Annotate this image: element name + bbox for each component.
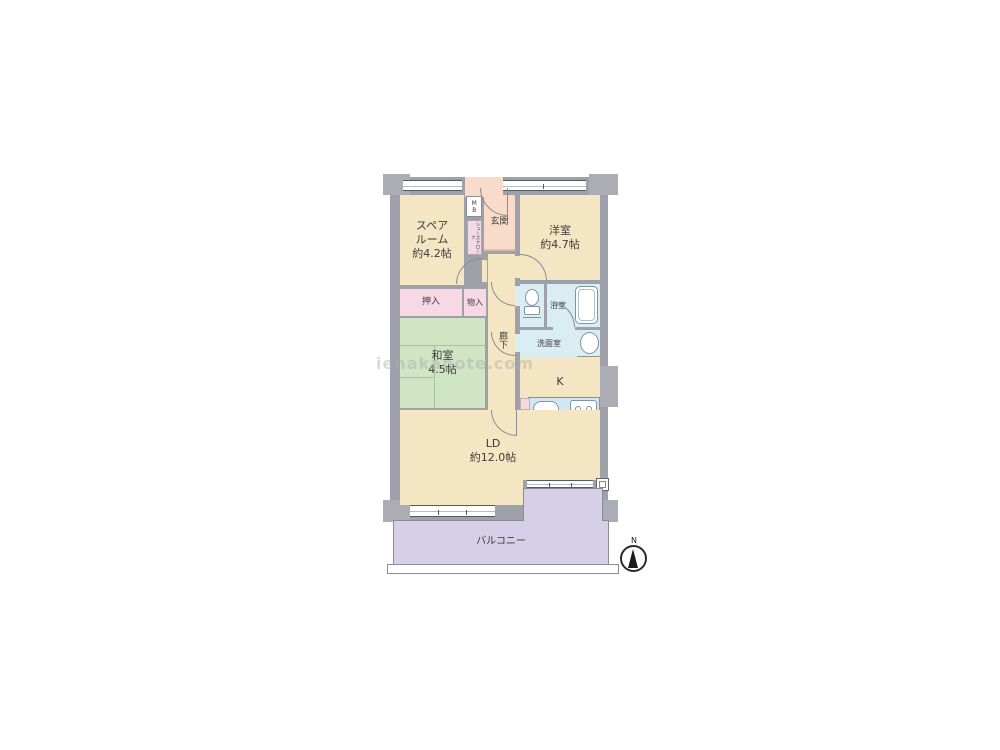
compass-north-label: N [631, 536, 637, 545]
bathtub-icon [575, 286, 598, 324]
opening-spare [482, 260, 487, 282]
room-entrance-label: 玄関 [490, 217, 508, 228]
ld-door-leaf [516, 410, 517, 436]
meter-box-label: MB [470, 200, 478, 214]
room-washroom-label: 洗面室 [537, 339, 561, 349]
opening-toilet [515, 286, 520, 306]
toilet-icon [523, 289, 541, 323]
room-toilet [520, 284, 544, 327]
entrance-step-line [484, 249, 515, 251]
window-ld-balcony-right [527, 480, 593, 488]
compass-needle [628, 549, 638, 568]
closet-monoire: 物入 [464, 289, 486, 316]
shoe-closet-label: シューズクローク [470, 221, 479, 254]
pillar-top-right [589, 174, 618, 195]
room-balcony-label: バルコニー [476, 536, 526, 549]
meter-box: MB [466, 196, 482, 217]
room-western-label: 洋室 約4.7帖 [540, 224, 580, 252]
room-ld-label: LD 約12.0帖 [470, 437, 517, 465]
room-kitchen-label: K [556, 375, 563, 389]
room-ld-label-box: LD 約12.0帖 [443, 434, 543, 468]
window-ld-balcony [410, 505, 495, 517]
floor-plan: スペア ルーム 約4.2帖 MB シューズクローク 玄関 廊下 洋室 約4.7帖 [383, 170, 635, 582]
compass-icon: N [617, 536, 651, 574]
watermark: ienakanote.com [376, 354, 716, 373]
balcony-extension [523, 488, 603, 521]
balcony-seam-patch [524, 519, 602, 522]
room-spare-label: スペア ルーム 約4.2帖 [412, 219, 452, 260]
closet-oshiire: 押入 [400, 289, 462, 316]
closet-oshiire-label: 押入 [422, 297, 440, 308]
opening-bath [553, 327, 575, 330]
floorplan-canvas: ienakanote.com スペア ルーム 約4.2帖 MB シューズクローク… [0, 0, 1000, 750]
closet-monoire-label: 物入 [467, 298, 483, 308]
balcony-railing [387, 564, 619, 574]
shoe-closet: シューズクローク [467, 220, 482, 255]
sink-icon [580, 332, 599, 354]
entrance-door-leaf [507, 188, 508, 217]
opening-washroom [515, 334, 520, 352]
window-spare-room [403, 180, 462, 191]
room-balcony: バルコニー [393, 520, 609, 565]
compass-circle [620, 545, 647, 572]
room-spare: スペア ルーム 約4.2帖 [400, 195, 464, 285]
fridge-space [520, 398, 530, 410]
window-western-room [503, 180, 586, 191]
